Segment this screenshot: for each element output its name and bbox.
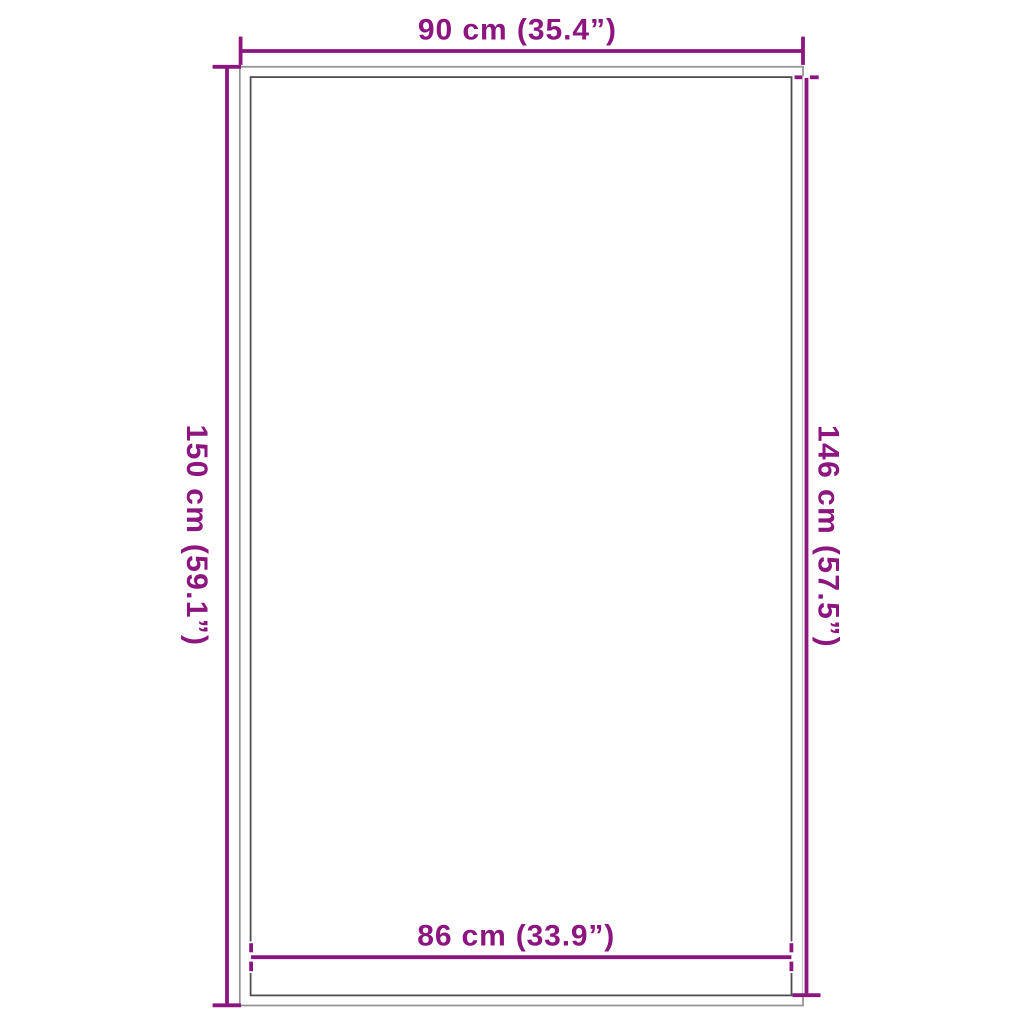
svg-text:150 cm (59.1”): 150 cm (59.1”)	[180, 425, 213, 647]
svg-text:90 cm (35.4”): 90 cm (35.4”)	[418, 13, 617, 46]
svg-text:86 cm (33.9”): 86 cm (33.9”)	[417, 920, 615, 953]
svg-text:146 cm (57.5”): 146 cm (57.5”)	[811, 425, 844, 648]
